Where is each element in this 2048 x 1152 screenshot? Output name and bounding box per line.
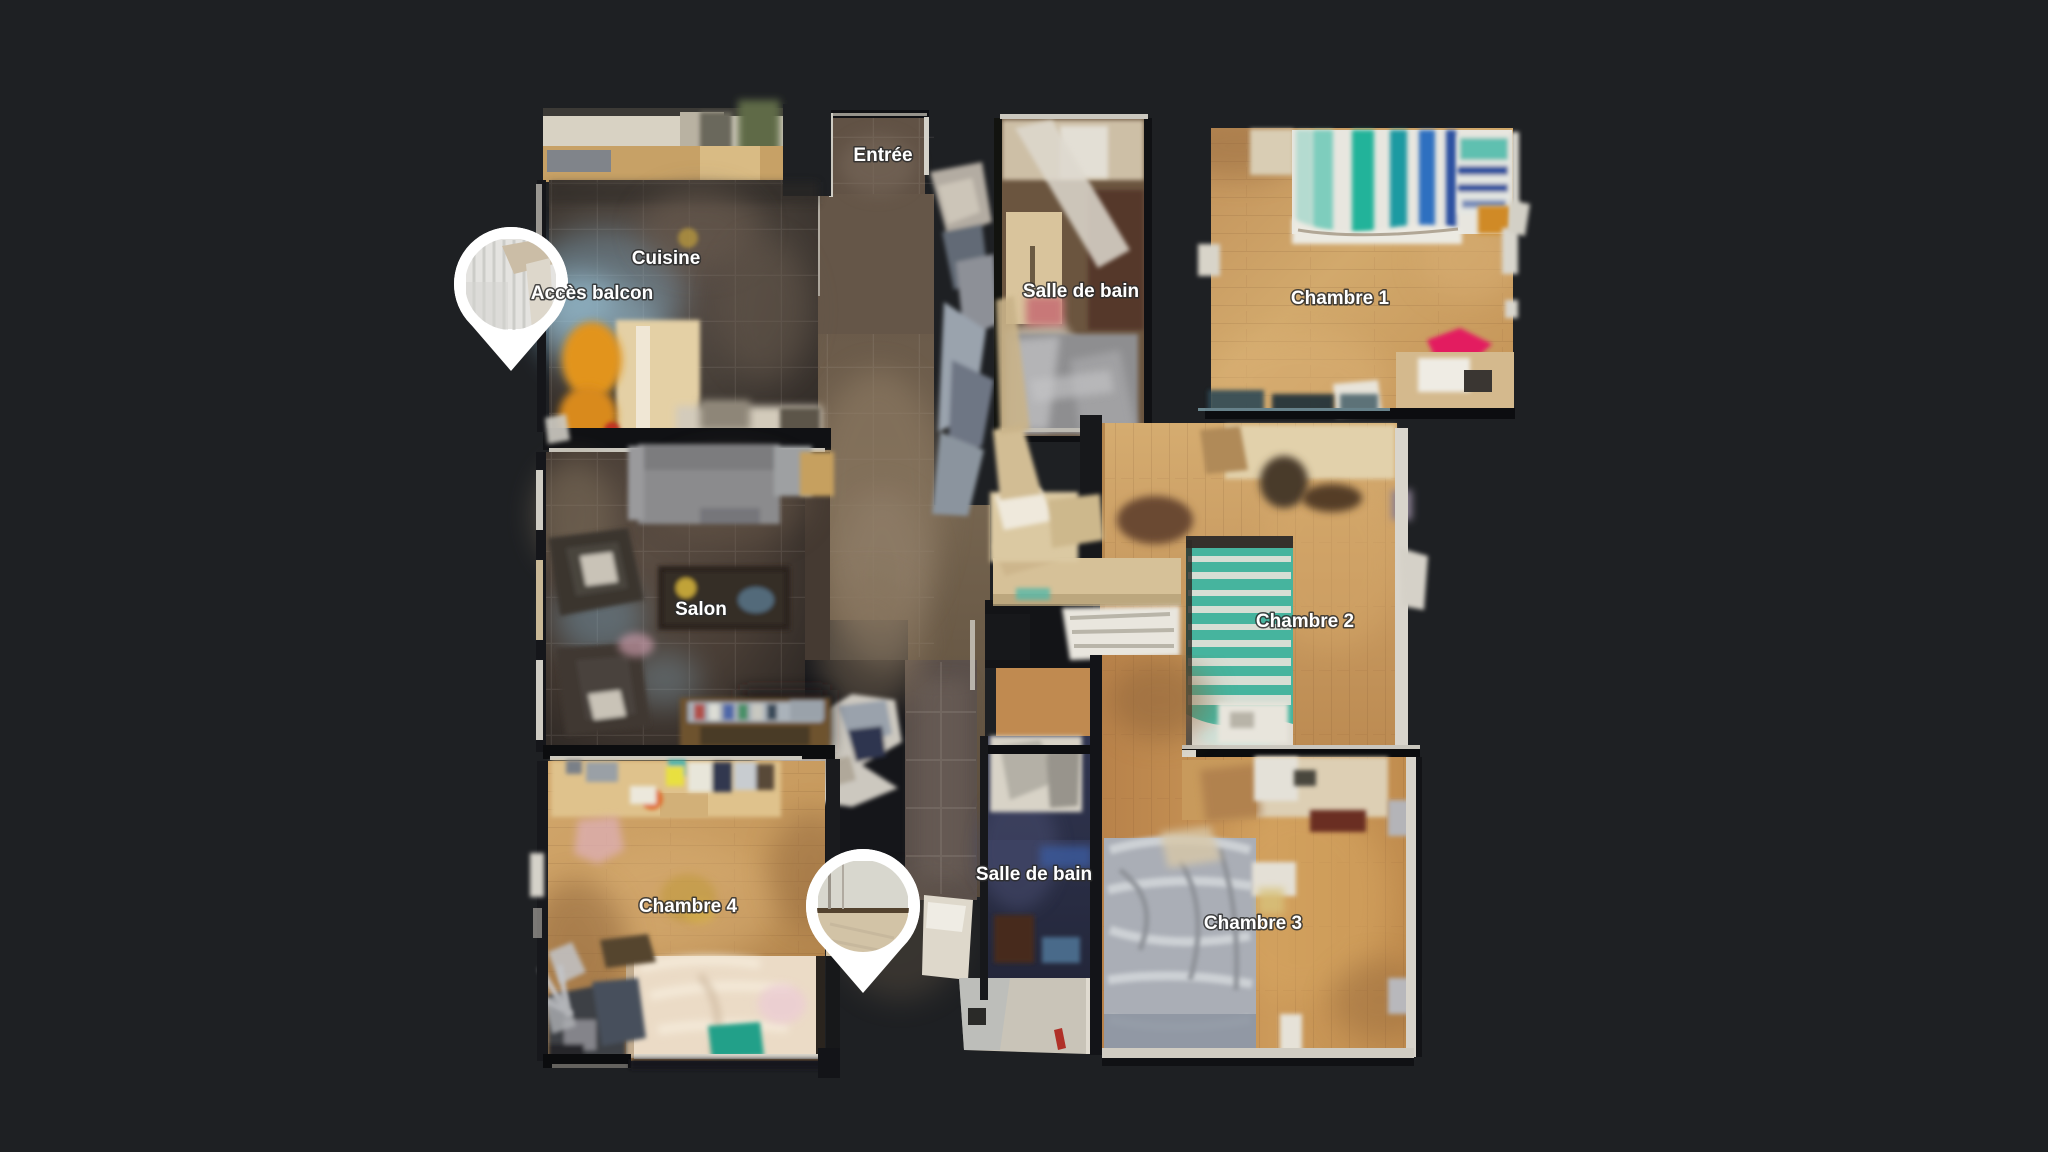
svg-text:Chambre 2: Chambre 2: [1256, 611, 1354, 632]
svg-text:Salle de bain: Salle de bain: [1023, 281, 1139, 302]
svg-text:Cuisine: Cuisine: [632, 248, 701, 269]
svg-text:Salon: Salon: [675, 599, 727, 620]
svg-text:Accès balcon: Accès balcon: [531, 283, 654, 304]
svg-text:Salle de bain: Salle de bain: [976, 864, 1092, 885]
svg-text:Chambre 3: Chambre 3: [1204, 913, 1302, 934]
svg-text:Chambre 1: Chambre 1: [1291, 288, 1390, 309]
svg-text:Entrée: Entrée: [853, 145, 912, 166]
svg-text:Chambre 4: Chambre 4: [639, 896, 738, 917]
